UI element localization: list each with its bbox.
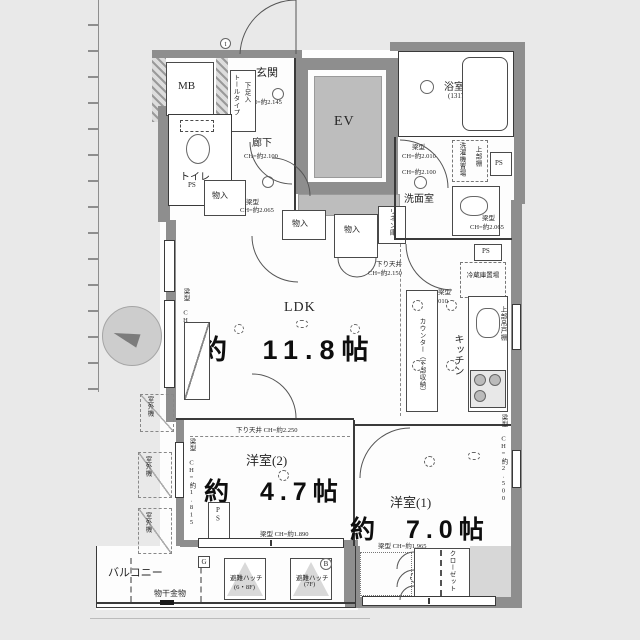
balcony-label: バルコニー — [108, 564, 163, 580]
kitchen-light-1 — [412, 300, 423, 311]
west2-label: 洋室(2) — [246, 450, 287, 469]
ldk-size: 約 11.8帖 — [200, 328, 376, 367]
west1-light-1 — [424, 456, 435, 467]
west2-downceiling: 下り天井 CH=約2.250 — [236, 424, 297, 434]
storage-c-label: 物入 — [344, 224, 360, 235]
closet-label: クローゼット — [446, 550, 456, 596]
genkan-light — [272, 88, 284, 100]
drying-fitting-label: 物干金物 — [154, 588, 186, 599]
toilet-tank — [180, 120, 214, 132]
west2-ps-label: PS — [214, 506, 222, 538]
wash-ch: CH=約2.100 — [402, 166, 436, 176]
kitchen-ldk-divider — [400, 244, 401, 416]
balcony-railing — [96, 602, 356, 604]
ps-kitchen-label: PS — [482, 247, 490, 255]
bath-light — [420, 80, 434, 94]
tv-unit — [184, 322, 210, 400]
stove-burner-2 — [489, 374, 501, 386]
kitchen-upper-label: 上部吊戸棚 — [497, 306, 507, 368]
wash-left-wall — [394, 137, 396, 239]
ev-label: EV — [334, 114, 355, 130]
window-kitchen-right — [512, 304, 521, 350]
west2-beam-left: 梁型 CH=約1.815 — [186, 438, 196, 502]
west1-top-wall — [353, 424, 511, 426]
window-west2-left — [175, 442, 184, 498]
genkan-label: 玄関 — [256, 64, 278, 80]
stove-burner-1 — [474, 374, 486, 386]
bathtub — [462, 57, 508, 131]
ldk-light-2 — [296, 320, 308, 328]
ps-top-right-label: PS — [495, 159, 503, 167]
sliding-door-west1-mullion — [428, 598, 430, 604]
fridge-label: 冷蔵庫置場 — [466, 272, 500, 280]
hall-light — [262, 176, 274, 188]
kitchen-counter-label: カウンター（下部収納） — [416, 318, 426, 398]
kitchen-light-3 — [446, 300, 457, 311]
wall-top-entry — [152, 50, 302, 58]
outdoor-unit-2-label: 室外機 — [142, 456, 152, 494]
mb-label: MB — [178, 80, 195, 92]
outdoor-unit-3-label: 室外機 — [142, 512, 152, 550]
kitchen-light-2 — [412, 360, 423, 371]
escape-hatch-2-floor: (7F) — [304, 581, 315, 588]
drying-pole-1 — [130, 558, 132, 602]
washer-label: 洗濯機置場 — [456, 142, 466, 182]
stove-burner-3 — [474, 390, 486, 402]
west1-label: 洋室(1) — [390, 492, 431, 511]
window-left-1 — [164, 240, 175, 292]
window-left-2 — [164, 300, 175, 388]
drying-fitting-mark — [160, 600, 174, 605]
marker-g: G — [198, 556, 210, 568]
marker-t: t — [220, 38, 231, 49]
ldk-bottom-wall — [176, 418, 354, 420]
hall-label: 廊下 — [252, 134, 272, 149]
ldk-light-3 — [350, 324, 360, 334]
property-line — [88, 0, 99, 392]
wall-top-bath — [390, 42, 524, 51]
wash-beam-top-ch: CH=約2.010 — [402, 150, 436, 160]
floor-plan: MB 玄関 CH=約2.145 トールタイプ 下足入 t トイレ PS 廊下 C… — [0, 0, 640, 640]
ldk-light-1 — [234, 324, 244, 334]
outdoor-unit-1-label: 室外機 — [144, 396, 154, 430]
wash-beam-bottom-ch: CH=約2.065 — [470, 221, 504, 231]
closet-pole — [440, 550, 442, 596]
toilet-ps-label: PS — [188, 181, 196, 189]
wall-right-upper — [514, 42, 525, 204]
kitchen-light-4 — [446, 360, 457, 371]
site-line-bottom — [90, 618, 370, 619]
west2-beam-bottom: 梁型 CH=約1.890 — [260, 528, 308, 538]
kitchen-downceiling-ch: CH=約2.150 — [368, 267, 402, 277]
wash-bottom-wall — [394, 238, 512, 240]
west1-light-2 — [468, 452, 480, 460]
toilet-bowl — [186, 134, 210, 164]
marker-b: B — [320, 558, 332, 570]
ldk-label: LDK — [284, 300, 316, 316]
hall-ch: CH=約2.100 — [244, 150, 278, 160]
escape-hatch-1-floor: (6・8F) — [234, 581, 255, 591]
washer-shelf-label: 上部棚 — [472, 146, 482, 176]
storage-b-label: 物入 — [292, 218, 308, 229]
wash-light — [414, 176, 427, 189]
window-west1-right — [512, 450, 521, 488]
wash-label: 洗面室 — [404, 190, 434, 205]
bath-label: 浴室 — [444, 78, 464, 93]
west2-light — [278, 470, 289, 481]
storage-c — [334, 214, 378, 258]
west2-downceiling-line — [190, 436, 350, 437]
west1-beam-right: 梁型 CH=約2.500 — [498, 414, 508, 484]
west1-rug — [360, 552, 412, 596]
shoe-label: 下足入 — [241, 82, 251, 122]
closet — [414, 548, 470, 598]
hall-ev-divider — [294, 58, 296, 232]
beam-left-ch: CH=約2.065 — [240, 204, 274, 214]
storage-a-label: 物入 — [212, 190, 228, 201]
wall-closet-right — [470, 546, 514, 600]
